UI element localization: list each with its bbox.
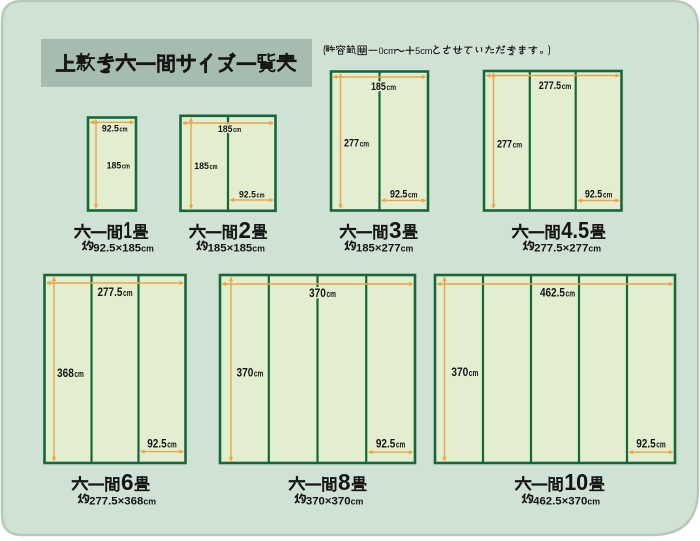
svg-text:92.5: 92.5 bbox=[147, 437, 167, 451]
svg-text:2: 2 bbox=[238, 217, 251, 243]
svg-text:cm: cm bbox=[122, 162, 130, 171]
svg-text:cm: cm bbox=[123, 288, 133, 298]
svg-text:cm: cm bbox=[401, 244, 414, 254]
svg-text:368: 368 bbox=[57, 366, 74, 380]
svg-text:cm: cm bbox=[252, 244, 265, 254]
svg-text:185: 185 bbox=[371, 81, 386, 93]
svg-text:cm: cm bbox=[656, 440, 666, 450]
svg-text:370: 370 bbox=[237, 366, 254, 380]
svg-text:277.5: 277.5 bbox=[97, 285, 122, 299]
svg-text:cm: cm bbox=[351, 497, 364, 507]
svg-text:cm: cm bbox=[233, 125, 241, 134]
svg-text:cm: cm bbox=[257, 190, 265, 199]
svg-text:462.5: 462.5 bbox=[540, 286, 565, 300]
svg-text:277.5: 277.5 bbox=[539, 80, 561, 92]
svg-text:cm: cm bbox=[603, 189, 613, 199]
svg-text:92.5: 92.5 bbox=[376, 437, 396, 451]
svg-text:277: 277 bbox=[344, 138, 359, 150]
svg-text:92.5×185: 92.5×185 bbox=[93, 243, 141, 255]
svg-text:185: 185 bbox=[194, 161, 209, 171]
svg-text:92.5: 92.5 bbox=[390, 188, 407, 200]
svg-text:370×370: 370×370 bbox=[306, 496, 351, 508]
svg-text:92.5: 92.5 bbox=[636, 437, 656, 451]
svg-text:cm: cm bbox=[120, 124, 128, 133]
svg-text:277.5×368: 277.5×368 bbox=[89, 496, 143, 508]
svg-text:5cm: 5cm bbox=[415, 46, 433, 56]
svg-text:cm: cm bbox=[469, 368, 479, 378]
svg-text:cm: cm bbox=[387, 82, 397, 92]
svg-text:cm: cm bbox=[210, 162, 218, 171]
svg-text:cm: cm bbox=[360, 139, 370, 149]
svg-text:cm: cm bbox=[254, 369, 264, 379]
svg-text:cm: cm bbox=[566, 289, 576, 299]
svg-text:cm: cm bbox=[74, 369, 84, 379]
svg-text:3: 3 bbox=[389, 217, 402, 243]
svg-text:10: 10 bbox=[564, 469, 588, 495]
svg-text:185: 185 bbox=[218, 124, 233, 134]
svg-text:cm: cm bbox=[396, 440, 406, 450]
svg-text:cm: cm bbox=[562, 81, 572, 91]
svg-text:cm: cm bbox=[588, 244, 601, 254]
svg-text:cm: cm bbox=[143, 497, 156, 507]
svg-text:0cm: 0cm bbox=[378, 46, 396, 56]
svg-text:6: 6 bbox=[121, 469, 134, 495]
svg-text:92.5: 92.5 bbox=[102, 123, 119, 133]
svg-text:92.5: 92.5 bbox=[585, 188, 602, 200]
svg-text:370: 370 bbox=[309, 286, 326, 300]
svg-text:cm: cm bbox=[167, 440, 177, 450]
svg-text:cm: cm bbox=[326, 289, 336, 299]
svg-text:370: 370 bbox=[451, 365, 468, 379]
svg-text:cm: cm bbox=[408, 189, 418, 199]
svg-text:cm: cm bbox=[587, 497, 600, 507]
svg-text:cm: cm bbox=[513, 140, 523, 150]
svg-text:277: 277 bbox=[497, 139, 512, 151]
svg-text:277.5×277: 277.5×277 bbox=[534, 243, 588, 255]
svg-text:185: 185 bbox=[107, 161, 122, 171]
svg-text:4.5: 4.5 bbox=[561, 217, 589, 243]
svg-text:462.5×370: 462.5×370 bbox=[533, 496, 587, 508]
svg-text:185×185: 185×185 bbox=[208, 243, 253, 255]
svg-text:8: 8 bbox=[338, 469, 351, 495]
svg-text:1: 1 bbox=[123, 217, 132, 243]
svg-text:185×277: 185×277 bbox=[356, 243, 401, 255]
svg-text:92.5: 92.5 bbox=[239, 189, 256, 199]
svg-text:cm: cm bbox=[141, 244, 154, 254]
